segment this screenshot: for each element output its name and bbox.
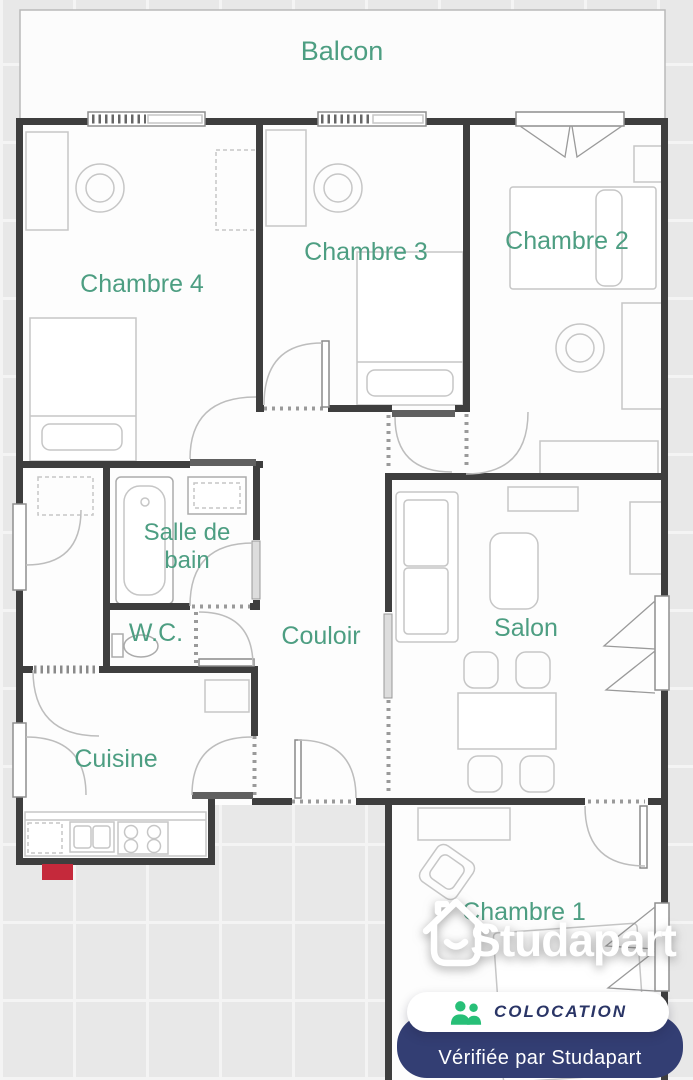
room-label-wc: W.C. [129,619,183,647]
roommates-icon [449,1000,483,1025]
colocation-label: COLOCATION [494,1002,627,1022]
room-label-balcon: Balcon [301,36,384,66]
floor-plan-image: Balcon [0,0,693,1080]
entrance-marker [42,864,73,880]
room-label-salle-de-bain-line1: Salle de [144,519,231,546]
room-label-salle-de-bain-line2: bain [164,547,209,574]
colocation-badge: COLOCATION [407,992,669,1032]
sink [188,477,246,514]
watermark-brand: Studapart [470,914,676,966]
room-label-chambre-4: Chambre 4 [80,270,204,298]
room-label-chambre-2: Chambre 2 [505,227,629,255]
coffee-table [490,533,538,609]
bed [357,252,463,405]
room-label-chambre-3: Chambre 3 [304,238,428,266]
sofa [396,492,458,642]
verified-label: Vérifiée par Studapart [438,1047,641,1070]
kitchen-counter [25,812,206,856]
room-label-salon: Salon [494,614,558,642]
balcony: Balcon [20,10,665,120]
room-label-couloir: Couloir [281,622,360,650]
bed [30,318,136,461]
window-chambre-4 [88,112,205,126]
floorplan-page: { "plan": { "rooms": { "balcon": "Balcon… [0,0,693,1080]
room-label-cuisine: Cuisine [74,745,157,773]
window-chambre-3 [318,112,426,126]
